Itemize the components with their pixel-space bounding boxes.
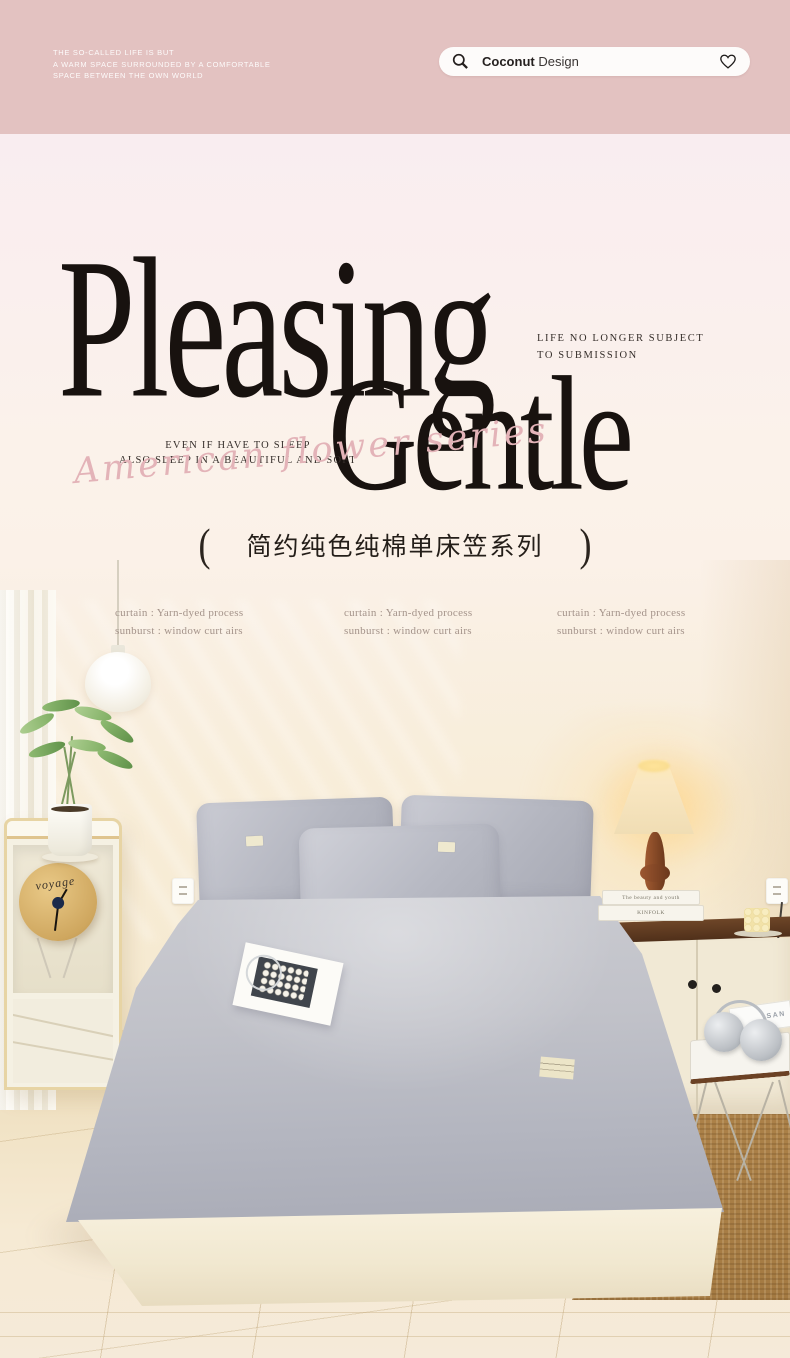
spec3-line2: sunburst : window curt airs	[557, 622, 685, 640]
product-photo: voyage	[0, 560, 790, 1358]
plant-leaf	[18, 710, 57, 738]
caption-right-line-2: TO SUBMISSION	[537, 347, 704, 364]
table-lamp-bulb-glow	[638, 760, 670, 772]
search-icon[interactable]	[452, 53, 469, 70]
table-lamp-wood-base	[645, 832, 665, 892]
search-brand-text: Coconut Design	[482, 54, 719, 69]
pillow-brand-tag	[246, 836, 264, 847]
sliding-door-seam	[696, 938, 698, 1114]
bed-base-cream	[76, 1208, 724, 1308]
series-title-row: ( 简约纯色纯棉单床笠系列 )	[0, 524, 790, 566]
door-knob	[688, 980, 697, 989]
plant-leaf	[98, 717, 136, 746]
brand-name-rest: Design	[535, 54, 579, 69]
tagline-line-3: SPACE BETWEEN THE OWN WORLD	[53, 70, 271, 82]
book-top: The beauty and youth	[602, 890, 700, 905]
spec1-line2: sunburst : window curt airs	[115, 622, 243, 640]
series-title: 简约纯色纯棉单床笠系列	[246, 527, 543, 563]
brand-name-bold: Coconut	[482, 54, 535, 69]
clock-stand-wire	[37, 938, 52, 979]
floor-seam	[0, 1336, 790, 1337]
clock-brand-label: voyage	[16, 871, 95, 897]
spec2-line2: sunburst : window curt airs	[344, 622, 472, 640]
door-knob	[712, 984, 721, 993]
heart-icon[interactable]	[719, 53, 737, 70]
promo-page: THE SO-CALLED LIFE IS BUT A WARM SPACE S…	[0, 0, 790, 1358]
series-bracket-close: )	[580, 519, 592, 572]
shelf-lower-compartment	[13, 999, 113, 1083]
headphones-earcup-right	[740, 1019, 782, 1061]
shelf-open-compartment: voyage	[13, 845, 113, 993]
shelf-divider	[13, 1013, 113, 1040]
floor-seam	[0, 1312, 790, 1313]
spec-column-1: curtain : Yarn-dyed process sunburst : w…	[115, 604, 243, 640]
tagline-line-1: THE SO-CALLED LIFE IS BUT	[53, 47, 271, 59]
spec3-line1: curtain : Yarn-dyed process	[557, 604, 685, 622]
caption-right-line-1: LIFE NO LONGER SUBJECT	[537, 330, 704, 347]
hero-caption-right: LIFE NO LONGER SUBJECT TO SUBMISSION	[537, 330, 704, 364]
clock-stand-wire	[63, 938, 78, 979]
wall-socket-left	[172, 878, 194, 904]
sheet-brand-tag	[539, 1057, 575, 1080]
wall-socket-right	[766, 878, 788, 904]
table-lamp-base-bulge	[640, 864, 670, 882]
book-bottom: KINFOLK	[598, 905, 704, 921]
spec2-line1: curtain : Yarn-dyed process	[344, 604, 472, 622]
spec1-line1: curtain : Yarn-dyed process	[115, 604, 243, 622]
plant-leaf	[95, 747, 134, 773]
plant-leaf	[27, 738, 67, 760]
pillow-brand-tag	[438, 842, 455, 853]
spec-column-2: curtain : Yarn-dyed process sunburst : w…	[344, 604, 472, 640]
clock-hub	[51, 896, 65, 910]
spec-column-3: curtain : Yarn-dyed process sunburst : w…	[557, 604, 685, 640]
headphones-earcup-left	[704, 1012, 744, 1052]
potted-plant	[14, 700, 144, 860]
tagline-line-2: A WARM SPACE SURROUNDED BY A COMFORTABLE	[53, 59, 271, 71]
search-bar[interactable]: Coconut Design	[439, 47, 750, 76]
plant-pot	[48, 804, 92, 856]
series-bracket-open: (	[198, 519, 210, 572]
bubble-candle	[744, 908, 770, 932]
voyage-clock: voyage	[14, 858, 102, 946]
header-tagline: THE SO-CALLED LIFE IS BUT A WARM SPACE S…	[53, 47, 271, 82]
header-bar: THE SO-CALLED LIFE IS BUT A WARM SPACE S…	[0, 0, 790, 134]
shelf-divider	[13, 1041, 113, 1064]
